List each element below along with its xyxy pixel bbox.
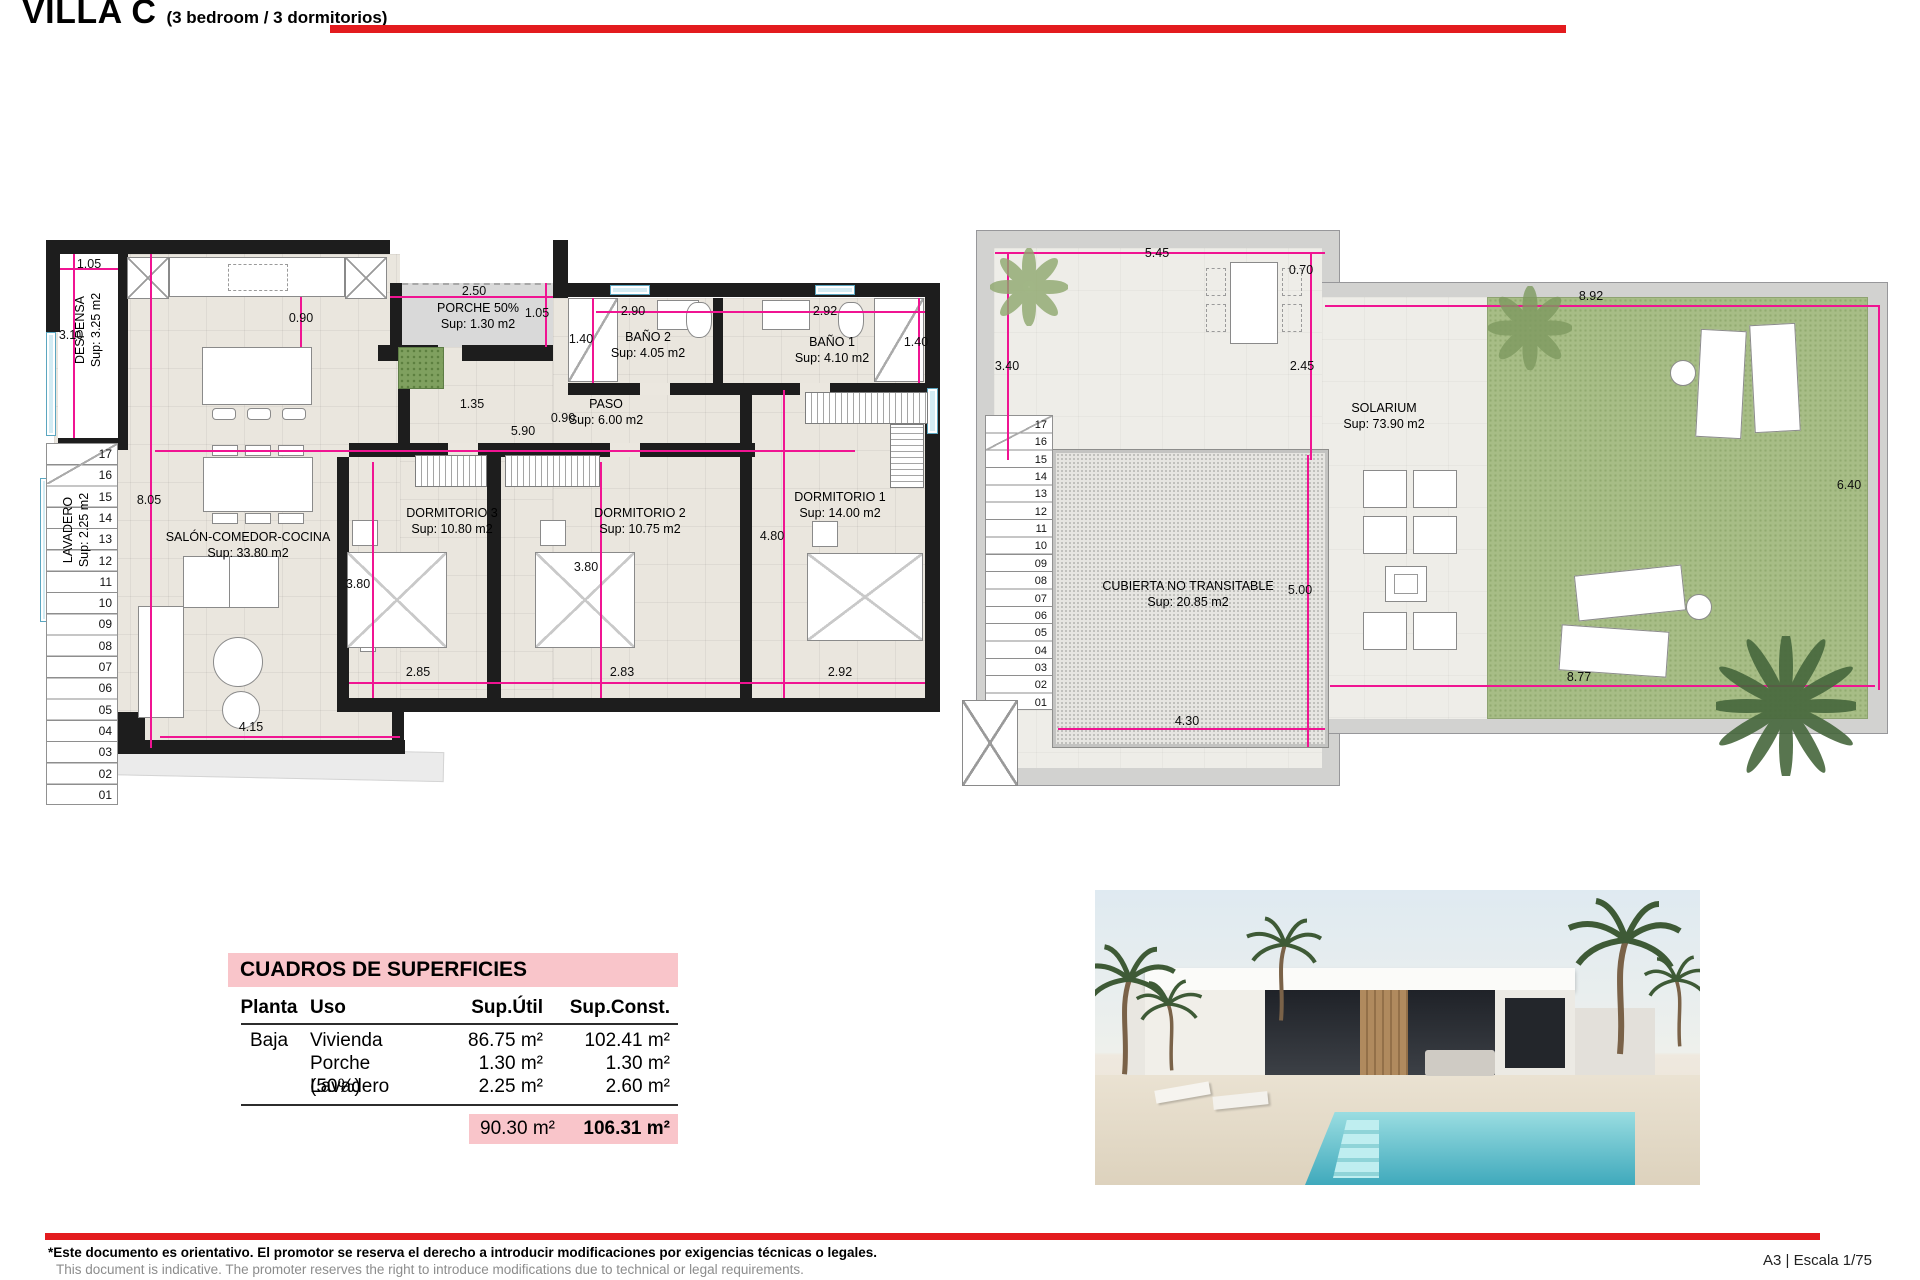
dimension-label: 1.40 <box>569 332 593 346</box>
wall <box>115 740 405 754</box>
stool <box>247 408 271 420</box>
dimension-label: 5.45 <box>1145 246 1169 260</box>
stair-number: 07 <box>99 660 112 674</box>
room-name: PASO <box>569 396 643 412</box>
stair-number: 03 <box>99 745 112 759</box>
col-header-suputil: Sup.Útil <box>422 993 555 1023</box>
kitchen-unit-icon <box>345 257 387 299</box>
stair-number: 01 <box>1035 697 1047 709</box>
cell-planta <box>228 1075 310 1098</box>
cell-const: 2.60 m² <box>555 1075 678 1098</box>
sink <box>762 300 810 330</box>
dimension-label: 2.92 <box>813 304 837 318</box>
round-table <box>1686 594 1712 620</box>
room-area: Sup: 3.25 m2 <box>88 293 104 367</box>
dimension-label: 1.35 <box>460 397 484 411</box>
stair-number: 09 <box>99 617 112 631</box>
dimension-label: 3.10 <box>59 328 83 342</box>
window <box>610 285 650 295</box>
sun-lounger <box>1695 329 1747 439</box>
wall <box>392 698 404 754</box>
pouf <box>213 637 263 687</box>
table-row: Porche (50%) 1.30 m² 1.30 m² <box>228 1052 678 1075</box>
wall <box>115 712 145 754</box>
nightstand <box>812 521 838 547</box>
stair-number: 06 <box>99 681 112 695</box>
table-title: CUADROS DE SUPERFICIES <box>228 953 678 987</box>
dining-table <box>203 457 313 512</box>
lounge-chair <box>1363 470 1407 508</box>
entry-steps <box>962 700 1018 786</box>
window <box>46 332 56 436</box>
dim-line <box>160 736 400 738</box>
cell-uso: Lavadero <box>310 1075 422 1098</box>
dimension-label: 5.90 <box>511 424 535 438</box>
stair-number: 12 <box>1035 506 1047 518</box>
room-name: CUBIERTA NO TRANSITABLE <box>1102 578 1273 594</box>
room-name: BAÑO 1 <box>795 334 869 350</box>
dim-line <box>155 450 855 452</box>
dimension-label: 2.92 <box>828 665 852 679</box>
room-name: DORMITORIO 3 <box>406 505 497 521</box>
dimension-label: 2.85 <box>406 665 430 679</box>
dim-line <box>349 682 925 684</box>
stair-number: 12 <box>99 554 112 568</box>
room-area: Sup: 4.05 m2 <box>611 345 685 361</box>
cell-const: 102.41 m² <box>555 1029 678 1052</box>
stair-number: 14 <box>99 511 112 525</box>
room-label: DORMITORIO 3Sup: 10.80 m2 <box>406 505 497 538</box>
stair-number: 05 <box>1035 627 1047 639</box>
cell-util: 86.75 m² <box>422 1029 555 1052</box>
room-area: Sup: 1.30 m2 <box>437 316 519 332</box>
total-util: 90.30 m² <box>469 1114 555 1144</box>
dim-line <box>1878 305 1880 690</box>
lounge-chair <box>1413 612 1457 650</box>
window <box>815 285 855 295</box>
dimension-label: 6.40 <box>1837 478 1861 492</box>
side-table <box>1385 566 1427 602</box>
sofa <box>183 556 279 608</box>
stair-number: 11 <box>1036 523 1047 535</box>
round-table <box>1670 360 1696 386</box>
dimension-label: 8.77 <box>1567 670 1591 684</box>
room-area: Sup: 10.75 m2 <box>594 521 685 537</box>
room-label: CUBIERTA NO TRANSITABLESup: 20.85 m2 <box>1102 578 1273 611</box>
table-header-row: Planta Uso Sup.Útil Sup.Const. <box>228 993 678 1023</box>
palm-tree-icon <box>1716 636 1856 776</box>
areas-table: CUADROS DE SUPERFICIES Planta Uso Sup.Út… <box>228 953 678 1144</box>
stair-number: 15 <box>99 490 112 504</box>
stair-number: 13 <box>1035 488 1047 500</box>
table-row: Baja Vivienda 86.75 m² 102.41 m² <box>228 1029 678 1052</box>
appliance <box>228 264 288 291</box>
room-name: DORMITORIO 2 <box>594 505 685 521</box>
room-label: SALÓN-COMEDOR-COCINASup: 33.80 m2 <box>166 529 331 562</box>
disclaimer-es: *Este documento es orientativo. El promo… <box>48 1245 877 1260</box>
dimension-label: 3.80 <box>346 577 370 591</box>
stair-number: 11 <box>100 575 112 589</box>
stair-number: 04 <box>99 724 112 738</box>
kitchen-unit-icon <box>127 257 169 299</box>
wardrobe <box>415 455 487 487</box>
stair-number: 14 <box>1035 471 1047 483</box>
stair-number: 16 <box>1035 436 1047 448</box>
room-label: DORMITORIO 1Sup: 14.00 m2 <box>794 489 885 522</box>
stair-number: 01 <box>99 788 112 802</box>
dimension-label: 2.45 <box>1290 359 1314 373</box>
stair-number: 08 <box>1035 575 1047 587</box>
dim-line <box>1058 728 1325 730</box>
palm-tree-icon <box>1643 950 1700 1050</box>
dimension-label: 0.90 <box>551 411 575 425</box>
cell-planta: Baja <box>228 1029 310 1052</box>
room-name: SOLARIUM <box>1343 400 1424 416</box>
stair-number: 15 <box>1035 454 1047 466</box>
room-name: BAÑO 2 <box>611 329 685 345</box>
room-area: Sup: 14.00 m2 <box>794 505 885 521</box>
wall <box>349 698 925 712</box>
room-area: Sup: 6.00 m2 <box>569 412 643 428</box>
photo-roof <box>1145 968 1575 990</box>
room-name: PORCHE 50% <box>437 300 519 316</box>
total-const: 106.31 m² <box>560 1114 670 1144</box>
wardrobe <box>805 392 928 424</box>
col-header-supconst: Sup.Const. <box>555 993 678 1023</box>
lounge-chair <box>1363 516 1407 554</box>
room-name: DORMITORIO 1 <box>794 489 885 505</box>
sofa-chaise <box>138 606 184 718</box>
cell-uso: Vivienda <box>310 1029 422 1052</box>
stair-number: 10 <box>99 596 112 610</box>
chair <box>278 513 304 524</box>
room-area: Sup: 10.80 m2 <box>406 521 497 537</box>
sun-lounger <box>1749 323 1801 433</box>
outdoor-table <box>1230 262 1278 344</box>
header-rule <box>330 25 1566 33</box>
palm-tree-icon <box>1243 910 1323 1025</box>
bed <box>807 553 923 641</box>
stair-number: 02 <box>1035 679 1047 691</box>
room-name: SALÓN-COMEDOR-COCINA <box>166 529 331 545</box>
lounge-chair <box>1413 516 1457 554</box>
disclaimer-en: This document is indicative. The promote… <box>56 1262 804 1277</box>
stair-number: 03 <box>1035 662 1047 674</box>
lounge-chair <box>1363 612 1407 650</box>
dimension-label: 4.80 <box>760 529 784 543</box>
room-area: Sup: 2.25 m2 <box>76 493 92 567</box>
room-label: PASOSup: 6.00 m2 <box>569 396 643 429</box>
nightstand <box>540 520 566 546</box>
dimension-label: 1.40 <box>904 335 928 349</box>
wall <box>46 240 390 254</box>
dimension-label: 2.50 <box>462 284 486 298</box>
lounge-chair <box>1413 470 1457 508</box>
stair-number: 16 <box>99 468 112 482</box>
sheet-scale-info: A3 | Escala 1/75 <box>1763 1252 1872 1269</box>
dim-line <box>600 462 602 698</box>
dim-line <box>1310 300 1312 460</box>
dimension-label: 1.05 <box>525 306 549 320</box>
dim-line <box>372 462 374 698</box>
chair <box>1206 268 1226 296</box>
stair-number: 06 <box>1035 610 1047 622</box>
stair-number: 02 <box>99 767 112 781</box>
villa-title: VILLA C <box>22 0 156 32</box>
wall <box>925 297 940 712</box>
room-label: PORCHE 50%Sup: 1.30 m2 <box>437 300 519 333</box>
stair-number: 13 <box>99 532 112 546</box>
dimension-label: 8.92 <box>1579 289 1603 303</box>
dimension-label: 5.00 <box>1288 583 1312 597</box>
dimension-label: 0.70 <box>1289 263 1313 277</box>
footer-rule <box>45 1233 1820 1240</box>
stool <box>212 408 236 420</box>
stair-number: 10 <box>1035 540 1047 552</box>
table-row: Lavadero 2.25 m² 2.60 m² <box>228 1075 678 1098</box>
room-label: DORMITORIO 2Sup: 10.75 m2 <box>594 505 685 538</box>
nightstand <box>352 520 378 546</box>
palm-tree-icon <box>1135 974 1205 1074</box>
dim-line <box>1325 305 1878 307</box>
dimension-label: 4.15 <box>239 720 263 734</box>
plan-sheet: VILLA C (3 bedroom / 3 dormitorios) <box>0 0 1920 1280</box>
dim-line <box>783 390 785 698</box>
wardrobe <box>890 424 924 488</box>
toilet <box>686 302 712 338</box>
stair-number: 05 <box>99 703 112 717</box>
dimension-label: 3.40 <box>995 359 1019 373</box>
stair-number: 17 <box>99 447 112 461</box>
bed <box>347 552 447 648</box>
wall <box>462 345 553 361</box>
villa-render-photo <box>1095 890 1700 1185</box>
room-area: Sup: 4.10 m2 <box>795 350 869 366</box>
dimension-label: 0.90 <box>289 311 313 325</box>
chair <box>1206 304 1226 332</box>
door-opening <box>640 383 670 395</box>
chair <box>212 513 238 524</box>
dimension-label: 2.90 <box>621 304 645 318</box>
wall <box>740 395 752 712</box>
wardrobe <box>505 455 600 487</box>
cell-util: 2.25 m² <box>422 1075 555 1098</box>
staircase: 1716151413121110090807060504030201 <box>985 415 1053 710</box>
wall <box>46 240 60 332</box>
stair-number: 08 <box>99 639 112 653</box>
tree-icon <box>990 248 1068 326</box>
stair-number: 17 <box>1035 419 1047 431</box>
stool <box>282 408 306 420</box>
toilet <box>838 302 864 338</box>
dim-line <box>1307 455 1309 747</box>
dimension-label: 3.80 <box>574 560 598 574</box>
stair-number: 09 <box>1035 558 1047 570</box>
room-label: BAÑO 1Sup: 4.10 m2 <box>795 334 869 367</box>
kitchen-island <box>202 347 312 405</box>
window <box>927 388 938 434</box>
col-header-planta: Planta <box>228 993 310 1023</box>
chair <box>1282 304 1302 332</box>
table-rule <box>241 1104 678 1106</box>
dimension-label: 2.83 <box>610 665 634 679</box>
stair-number: 04 <box>1035 645 1047 657</box>
tree-icon <box>1488 286 1572 370</box>
wall <box>487 457 501 712</box>
chair <box>245 513 271 524</box>
wall <box>390 283 402 347</box>
room-area: Sup: 73.90 m2 <box>1343 416 1424 432</box>
table-rule <box>241 1023 678 1025</box>
dimension-label: 8.05 <box>137 493 161 507</box>
totals-row: 90.30 m² 106.31 m² <box>228 1114 678 1144</box>
dimension-label: 1.05 <box>77 257 101 271</box>
room-name: LAVADERO <box>60 493 76 567</box>
photo-wood-pillar <box>1360 990 1408 1075</box>
photo-porch-sofa <box>1425 1050 1495 1076</box>
room-label: BAÑO 2Sup: 4.05 m2 <box>611 329 685 362</box>
room-area: Sup: 20.85 m2 <box>1102 594 1273 610</box>
stair-number: 07 <box>1035 593 1047 605</box>
dim-line <box>596 311 925 313</box>
room-area: Sup: 33.80 m2 <box>166 545 331 561</box>
plant-icon <box>398 347 444 389</box>
dimension-label: 4.30 <box>1175 714 1199 728</box>
room-label: SOLARIUMSup: 73.90 m2 <box>1343 400 1424 433</box>
room-label: LAVADEROSup: 2.25 m2 <box>60 493 93 567</box>
col-header-uso: Uso <box>310 993 422 1023</box>
photo-window <box>1505 998 1565 1068</box>
